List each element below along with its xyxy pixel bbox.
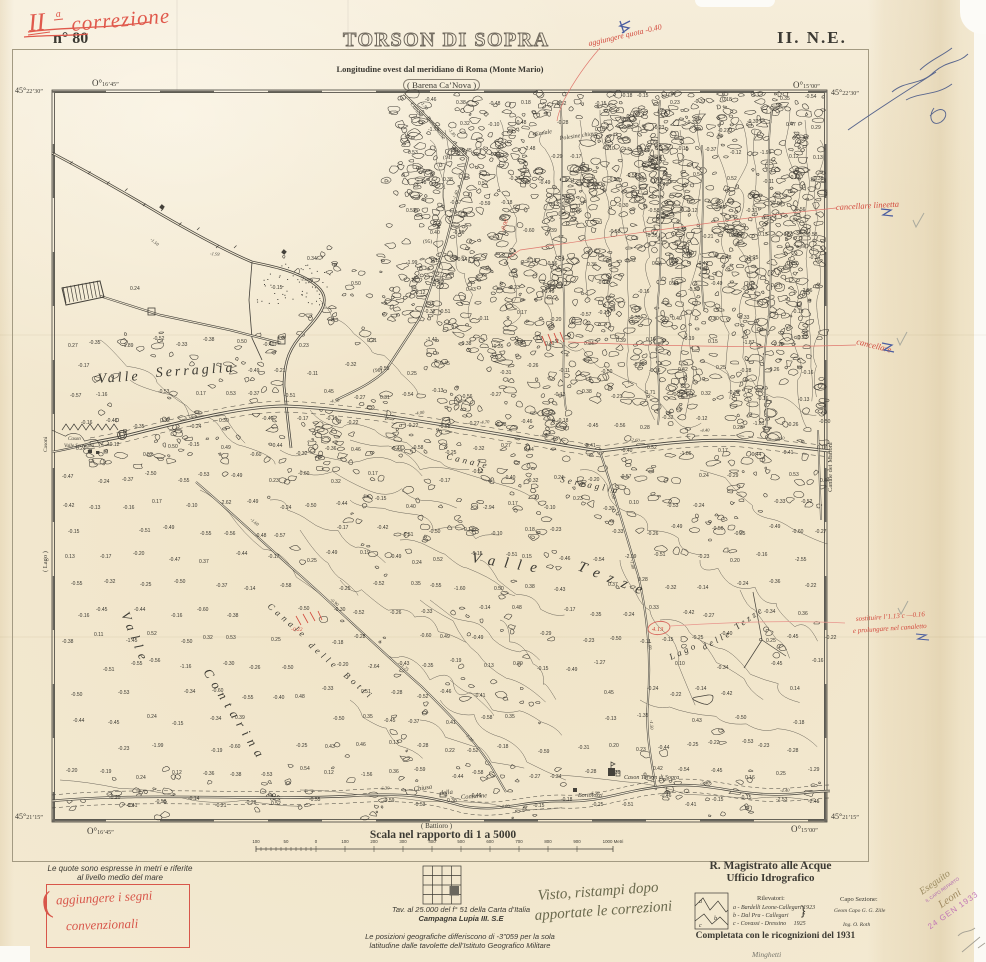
svg-text:( Lago ): ( Lago ) bbox=[42, 551, 49, 572]
svg-text:-0.26: -0.26 bbox=[453, 230, 465, 236]
svg-text:-0.50: -0.50 bbox=[819, 419, 831, 425]
svg-text:-0.42: -0.42 bbox=[721, 691, 733, 697]
svg-text:-0.37: -0.37 bbox=[122, 477, 134, 483]
svg-text:-0.35: -0.35 bbox=[590, 612, 602, 618]
svg-text:(94): (94) bbox=[443, 154, 452, 161]
svg-text:( Battioro ): ( Battioro ) bbox=[421, 822, 453, 830]
svg-text:-0.56: -0.56 bbox=[712, 526, 724, 532]
svg-text:-0.22: -0.22 bbox=[805, 583, 817, 589]
svg-text:-0.28: -0.28 bbox=[557, 120, 569, 126]
svg-text:-0.52: -0.52 bbox=[373, 581, 385, 587]
svg-text:-0.49: -0.49 bbox=[326, 550, 338, 556]
svg-text:-0.25: -0.25 bbox=[339, 586, 351, 592]
svg-text:0.40: 0.40 bbox=[406, 504, 416, 510]
svg-text:-0.28: -0.28 bbox=[585, 769, 597, 775]
svg-text:-0.44: -0.44 bbox=[134, 607, 146, 613]
svg-text:-0.50: -0.50 bbox=[601, 369, 613, 375]
svg-text:-0.29: -0.29 bbox=[551, 154, 563, 160]
svg-text:-0.34: -0.34 bbox=[809, 255, 821, 261]
svg-text:-0.18: -0.18 bbox=[501, 200, 513, 206]
svg-text:-0.55: -0.55 bbox=[71, 581, 83, 587]
svg-text:0.13: 0.13 bbox=[464, 527, 474, 533]
svg-text:Tezze: Tezze bbox=[732, 604, 766, 632]
svg-text:Chiusa: Chiusa bbox=[413, 783, 432, 792]
svg-text:0.18: 0.18 bbox=[525, 527, 535, 533]
svg-text:-0.44: -0.44 bbox=[73, 718, 85, 724]
svg-text:100: 100 bbox=[252, 839, 260, 844]
svg-text:-0.15: -0.15 bbox=[740, 795, 752, 801]
svg-text:-0.47: -0.47 bbox=[62, 474, 74, 480]
svg-text:-0.16: -0.16 bbox=[633, 362, 645, 368]
svg-text:-0.10: -0.10 bbox=[544, 505, 556, 511]
svg-text:-0.37: -0.37 bbox=[248, 391, 260, 397]
svg-text:0.11: 0.11 bbox=[545, 341, 555, 347]
svg-text:-0.54: -0.54 bbox=[805, 94, 817, 100]
svg-text:-0.26: -0.26 bbox=[390, 610, 402, 616]
svg-text:-0.57: -0.57 bbox=[70, 393, 82, 399]
svg-text:-0.14: -0.14 bbox=[695, 686, 707, 692]
svg-text:-1.60: -1.60 bbox=[249, 517, 260, 527]
svg-text:-0.56: -0.56 bbox=[461, 394, 473, 400]
svg-text:Valle Serraglia: Valle Serraglia bbox=[64, 444, 95, 449]
svg-text:-0.54: -0.54 bbox=[402, 392, 414, 398]
svg-text:-0.48: -0.48 bbox=[720, 255, 732, 261]
svg-text:-0.51: -0.51 bbox=[622, 802, 634, 808]
svg-text:-0.38: -0.38 bbox=[495, 422, 507, 428]
svg-text:-0.15: -0.15 bbox=[595, 101, 607, 107]
svg-text:-0.45: -0.45 bbox=[587, 423, 599, 429]
svg-text:-0.42: -0.42 bbox=[683, 610, 695, 616]
svg-text:-0.14: -0.14 bbox=[741, 286, 753, 292]
svg-text:0.21: 0.21 bbox=[367, 338, 377, 344]
svg-text:-0.50: -0.50 bbox=[429, 529, 441, 535]
svg-text:-0.16: -0.16 bbox=[649, 368, 661, 374]
svg-text:-0.38: -0.38 bbox=[203, 337, 215, 343]
svg-text:-0.26: -0.26 bbox=[647, 531, 659, 537]
svg-text:-0.50: -0.50 bbox=[735, 715, 747, 721]
svg-text:cancellare: cancellare bbox=[856, 336, 893, 354]
svg-text:e prolungare nel canaletto: e prolungare nel canaletto bbox=[853, 622, 928, 635]
svg-text:-0.20: -0.20 bbox=[672, 392, 684, 398]
svg-text:-0.42: -0.42 bbox=[377, 525, 389, 531]
svg-text:-3.40: -3.40 bbox=[700, 780, 711, 786]
svg-text:-0.18: -0.18 bbox=[332, 640, 344, 646]
svg-text:0.53: 0.53 bbox=[226, 635, 236, 641]
svg-text:-0.32: -0.32 bbox=[662, 415, 674, 421]
svg-text:-0.54: -0.54 bbox=[771, 201, 783, 207]
svg-text:-0.22: -0.22 bbox=[789, 175, 801, 181]
svg-text:-0.49: -0.49 bbox=[671, 524, 683, 530]
svg-text:0.29: 0.29 bbox=[811, 125, 821, 131]
svg-text:-1.99: -1.99 bbox=[152, 743, 164, 749]
svg-text:-1.27: -1.27 bbox=[594, 660, 606, 666]
svg-text:-0.19: -0.19 bbox=[683, 336, 695, 342]
svg-text:-0.14: -0.14 bbox=[244, 586, 256, 592]
svg-text:0.27: 0.27 bbox=[501, 443, 511, 449]
svg-text:-0.24: -0.24 bbox=[647, 686, 659, 692]
svg-text:-0.41: -0.41 bbox=[106, 418, 118, 424]
svg-text:-0.49: -0.49 bbox=[247, 499, 259, 505]
svg-text:-0.60: -0.60 bbox=[229, 744, 241, 750]
svg-text:O°16’45”: O°16’45” bbox=[92, 78, 119, 88]
svg-text:0.14: 0.14 bbox=[790, 686, 800, 692]
svg-text:-0.16: -0.16 bbox=[171, 613, 183, 619]
svg-text:0.22: 0.22 bbox=[445, 748, 455, 754]
svg-text:-0.53: -0.53 bbox=[414, 802, 426, 808]
svg-text:0.36: 0.36 bbox=[389, 769, 399, 775]
svg-text:-0.48: -0.48 bbox=[415, 180, 427, 186]
svg-text:-0.52: -0.52 bbox=[472, 469, 484, 475]
svg-text:Casoni: Casoni bbox=[43, 436, 49, 452]
svg-text:-0.16: -0.16 bbox=[638, 289, 650, 295]
svg-text:a: a bbox=[699, 899, 702, 905]
svg-text:0.43: 0.43 bbox=[692, 718, 702, 724]
svg-text:-0.22: -0.22 bbox=[347, 420, 359, 426]
svg-text:-0.32: -0.32 bbox=[424, 309, 436, 315]
svg-text:-0.25: -0.25 bbox=[140, 582, 152, 588]
svg-text:-0.38: -0.38 bbox=[62, 639, 74, 645]
svg-text:Cason: Cason bbox=[68, 437, 81, 442]
svg-text:-0.36: -0.36 bbox=[769, 579, 781, 585]
svg-text:-0.51: -0.51 bbox=[284, 393, 296, 399]
svg-text:-0.57: -0.57 bbox=[274, 533, 286, 539]
svg-text:-0.27: -0.27 bbox=[815, 529, 827, 535]
svg-text:-2.45: -2.45 bbox=[808, 799, 820, 805]
svg-text:0.36: 0.36 bbox=[798, 611, 808, 617]
svg-text:-0.48: -0.48 bbox=[255, 533, 267, 539]
svg-text:0.47: 0.47 bbox=[786, 122, 796, 128]
svg-text:Geom Capo G. G. Zille: Geom Capo G. G. Zille bbox=[834, 908, 886, 914]
svg-text:0.52: 0.52 bbox=[143, 452, 153, 458]
svg-text:-0.53: -0.53 bbox=[118, 690, 130, 696]
svg-text:-0.50: -0.50 bbox=[174, 579, 186, 585]
svg-text:-0.16: -0.16 bbox=[525, 258, 537, 264]
svg-text:-1.95: -1.95 bbox=[760, 150, 772, 156]
svg-text:0.39: 0.39 bbox=[616, 338, 626, 344]
svg-text:-0.35: -0.35 bbox=[646, 233, 658, 239]
svg-text:-1.60: -1.60 bbox=[647, 640, 653, 651]
svg-text:-0.27: -0.27 bbox=[468, 421, 480, 427]
svg-text:O°15’00”: O°15’00” bbox=[793, 80, 820, 90]
svg-text:-0.42: -0.42 bbox=[63, 503, 75, 509]
svg-text:0.24: 0.24 bbox=[130, 286, 140, 292]
svg-text:-0.46: -0.46 bbox=[391, 446, 403, 452]
svg-text:-0.14: -0.14 bbox=[456, 257, 468, 263]
svg-text:0.36: 0.36 bbox=[587, 262, 597, 268]
svg-text:-0.17: -0.17 bbox=[570, 154, 582, 160]
svg-text:-0.30: -0.30 bbox=[334, 607, 346, 613]
svg-text:-0.39: -0.39 bbox=[747, 119, 759, 125]
svg-text:-1.50: -1.50 bbox=[149, 237, 160, 247]
svg-text:0.31: 0.31 bbox=[565, 178, 575, 184]
svg-text:-0.41: -0.41 bbox=[126, 803, 138, 809]
svg-text:-0.53: -0.53 bbox=[261, 772, 273, 778]
svg-text:-0.53: -0.53 bbox=[158, 389, 170, 395]
svg-text:-0.15: -0.15 bbox=[172, 721, 184, 727]
svg-text:-0.20: -0.20 bbox=[66, 768, 78, 774]
svg-text:-0.19: -0.19 bbox=[326, 416, 338, 422]
svg-text:-0.40: -0.40 bbox=[504, 475, 516, 481]
svg-text:0.35: 0.35 bbox=[411, 581, 421, 587]
svg-text:a: a bbox=[55, 9, 61, 20]
svg-text:-0.44: -0.44 bbox=[750, 452, 762, 458]
svg-text:delle: delle bbox=[700, 628, 733, 652]
svg-text:-0.21: -0.21 bbox=[215, 803, 227, 809]
svg-text:0.50: 0.50 bbox=[351, 281, 361, 287]
svg-text:0.10: 0.10 bbox=[629, 500, 639, 506]
svg-text:-0.30: -0.30 bbox=[617, 203, 629, 209]
svg-text:0.52: 0.52 bbox=[727, 176, 737, 182]
svg-text:-0.24: -0.24 bbox=[190, 424, 202, 430]
svg-text:-0.49: -0.49 bbox=[566, 667, 578, 673]
svg-text:-0.34: -0.34 bbox=[509, 176, 521, 182]
svg-text:-0.50: -0.50 bbox=[298, 606, 310, 612]
svg-text:-0.33: -0.33 bbox=[612, 529, 624, 535]
svg-text:-0.58: -0.58 bbox=[412, 445, 424, 451]
svg-text:-0.49: -0.49 bbox=[711, 281, 723, 287]
svg-text:0.17: 0.17 bbox=[817, 445, 827, 451]
svg-text:-0.16: -0.16 bbox=[123, 505, 135, 511]
svg-text:0.20: 0.20 bbox=[730, 558, 740, 564]
svg-text:0.41: 0.41 bbox=[586, 443, 596, 449]
svg-text:0.29: 0.29 bbox=[787, 261, 797, 267]
svg-text:-0.51: -0.51 bbox=[654, 552, 666, 558]
svg-text:-0.55: -0.55 bbox=[626, 173, 638, 179]
svg-text:-0.46: -0.46 bbox=[440, 689, 452, 695]
svg-text:-0.28: -0.28 bbox=[354, 634, 366, 640]
svg-text:-0.48: -0.48 bbox=[515, 120, 527, 126]
svg-text:0.27: 0.27 bbox=[771, 283, 781, 289]
svg-text:-0.50: -0.50 bbox=[181, 639, 193, 645]
svg-text:0.18: 0.18 bbox=[521, 100, 531, 106]
svg-text:-0.56: -0.56 bbox=[224, 531, 236, 537]
svg-text:-0.28: -0.28 bbox=[740, 368, 752, 374]
svg-text:0.24: 0.24 bbox=[412, 560, 422, 566]
svg-text:-0.55: -0.55 bbox=[242, 695, 254, 701]
svg-text:0.17: 0.17 bbox=[368, 471, 378, 477]
svg-text:-0.53: -0.53 bbox=[198, 472, 210, 478]
svg-text:-0.24: -0.24 bbox=[98, 479, 110, 485]
svg-text:0.37: 0.37 bbox=[199, 559, 209, 565]
svg-text:-0.23: -0.23 bbox=[583, 638, 595, 644]
svg-text:-4.40: -4.40 bbox=[780, 788, 790, 793]
svg-text:-0.27: -0.27 bbox=[703, 613, 715, 619]
svg-text:-4.40: -4.40 bbox=[540, 432, 551, 438]
svg-text:0.52: 0.52 bbox=[147, 631, 157, 637]
svg-text:0.15: 0.15 bbox=[758, 232, 768, 238]
svg-text:-0.49: -0.49 bbox=[163, 525, 175, 531]
svg-text:0.52: 0.52 bbox=[647, 445, 657, 451]
svg-text:-0.38: -0.38 bbox=[227, 613, 239, 619]
svg-text:0.25: 0.25 bbox=[776, 771, 786, 777]
svg-text:-0.12: -0.12 bbox=[730, 150, 742, 156]
svg-text:-0.53: -0.53 bbox=[742, 739, 754, 745]
svg-text:-0.43: -0.43 bbox=[554, 587, 566, 593]
svg-text:-0.38: -0.38 bbox=[230, 772, 242, 778]
svg-text:-4.40: -4.40 bbox=[700, 427, 711, 433]
svg-text:-2.60: -2.60 bbox=[630, 437, 641, 443]
svg-text:-0.42: -0.42 bbox=[697, 261, 709, 267]
svg-text:0.29: 0.29 bbox=[513, 661, 523, 667]
svg-text:-1.86: -1.86 bbox=[680, 451, 692, 457]
svg-text:-0.10: -0.10 bbox=[186, 503, 198, 509]
svg-text:-0.25: -0.25 bbox=[296, 743, 308, 749]
svg-text:0.35: 0.35 bbox=[363, 714, 373, 720]
svg-text:0.53: 0.53 bbox=[789, 472, 799, 478]
svg-text:-0.33: -0.33 bbox=[728, 390, 740, 396]
svg-text:-0.23: -0.23 bbox=[550, 527, 562, 533]
svg-text:-0.37: -0.37 bbox=[408, 719, 420, 725]
svg-text:0.11: 0.11 bbox=[431, 258, 441, 264]
svg-text:-0.49: -0.49 bbox=[390, 554, 402, 560]
svg-text:0.23: 0.23 bbox=[299, 343, 309, 349]
svg-text:45°21’15”: 45°21’15” bbox=[15, 812, 43, 821]
svg-text:-0.44: -0.44 bbox=[236, 551, 248, 557]
svg-text:-0.19: -0.19 bbox=[100, 769, 112, 775]
svg-text:-0.45: -0.45 bbox=[771, 661, 783, 667]
svg-text:-1.87: -1.87 bbox=[743, 340, 755, 346]
svg-text:-0.59: -0.59 bbox=[479, 201, 491, 207]
svg-text:-0.37: -0.37 bbox=[216, 583, 228, 589]
svg-text:-0.15: -0.15 bbox=[637, 93, 649, 99]
svg-text:0.31: 0.31 bbox=[669, 281, 679, 287]
svg-text:-0.49: -0.49 bbox=[472, 635, 484, 641]
svg-text:600: 600 bbox=[486, 839, 494, 844]
svg-text:-1.50: -1.50 bbox=[649, 720, 654, 730]
svg-text:-4.50: -4.50 bbox=[775, 436, 785, 441]
svg-text:-2.96: -2.96 bbox=[801, 288, 813, 294]
svg-text:-4.00: -4.00 bbox=[414, 410, 425, 416]
svg-text:-0.34: -0.34 bbox=[210, 716, 222, 722]
svg-text:0.27: 0.27 bbox=[68, 343, 78, 349]
svg-text:-0.14: -0.14 bbox=[479, 605, 491, 611]
svg-text:-0.15: -0.15 bbox=[662, 637, 674, 643]
svg-text:b - Dal Pra - Callegari: b - Dal Pra - Callegari ” bbox=[733, 913, 806, 919]
svg-text:-0.26: -0.26 bbox=[527, 363, 539, 369]
svg-text:-0.16: -0.16 bbox=[78, 613, 90, 619]
svg-text:-0.12: -0.12 bbox=[686, 208, 698, 214]
svg-text:aggiungere quota -0.40: aggiungere quota -0.40 bbox=[587, 22, 662, 48]
svg-text:0.38: 0.38 bbox=[525, 584, 535, 590]
svg-text:a: a bbox=[399, 423, 402, 429]
svg-text:-0.46: -0.46 bbox=[559, 556, 571, 562]
svg-text:-2.64: -2.64 bbox=[368, 664, 380, 670]
svg-text:-0.32: -0.32 bbox=[796, 335, 808, 341]
svg-text:0.35: 0.35 bbox=[505, 714, 515, 720]
svg-text:-0.52: -0.52 bbox=[555, 101, 567, 107]
svg-text:(95): (95) bbox=[423, 238, 432, 245]
svg-text:-2.62: -2.62 bbox=[220, 500, 232, 506]
svg-text:-0.50: -0.50 bbox=[688, 287, 700, 293]
svg-text:-0.36: -0.36 bbox=[325, 446, 337, 452]
svg-text:-0.40: -0.40 bbox=[263, 342, 275, 348]
svg-text:-1.80: -1.80 bbox=[629, 559, 636, 570]
svg-text:-2.50: -2.50 bbox=[145, 471, 157, 477]
svg-text:-0.15: -0.15 bbox=[537, 666, 549, 672]
svg-text:-0.17: -0.17 bbox=[297, 416, 309, 422]
svg-text:0.15: 0.15 bbox=[708, 339, 718, 345]
svg-text:-0.18: -0.18 bbox=[793, 720, 805, 726]
svg-text:-0.28: -0.28 bbox=[787, 748, 799, 754]
svg-text:-0.18: -0.18 bbox=[621, 93, 633, 99]
svg-text:-0.11: -0.11 bbox=[559, 368, 570, 374]
svg-text:-0.44: -0.44 bbox=[658, 745, 670, 751]
svg-text:0.23: 0.23 bbox=[510, 285, 520, 291]
svg-text:-0.22: -0.22 bbox=[670, 692, 682, 698]
svg-text:-0.22: -0.22 bbox=[825, 635, 837, 641]
svg-text:-0.34: -0.34 bbox=[638, 148, 650, 154]
svg-text:-0.60: -0.60 bbox=[420, 633, 432, 639]
svg-text:-4.70: -4.70 bbox=[480, 419, 491, 425]
svg-text:-0.46: -0.46 bbox=[521, 419, 533, 425]
svg-text:-0.10: -0.10 bbox=[488, 122, 500, 128]
svg-text:-0.24: -0.24 bbox=[280, 505, 292, 511]
svg-text:0.50: 0.50 bbox=[237, 339, 247, 345]
svg-text:-1.35: -1.35 bbox=[637, 713, 649, 719]
svg-text:-0.32: -0.32 bbox=[345, 362, 357, 368]
svg-text:-0.53: -0.53 bbox=[782, 232, 794, 238]
svg-text:0.32: 0.32 bbox=[460, 121, 470, 127]
svg-text:0.35: 0.35 bbox=[780, 96, 790, 102]
svg-text:-0.11: -0.11 bbox=[763, 179, 774, 185]
svg-text:45°22’30”: 45°22’30” bbox=[831, 88, 859, 97]
svg-text:-0.60: -0.60 bbox=[298, 471, 310, 477]
svg-text:-0.47: -0.47 bbox=[169, 557, 181, 563]
svg-text:-0.52: -0.52 bbox=[801, 499, 813, 505]
svg-text:-0.32: -0.32 bbox=[473, 446, 485, 452]
svg-text:-0.55: -0.55 bbox=[430, 583, 442, 589]
svg-text:-0.13: -0.13 bbox=[554, 392, 566, 398]
svg-text:-0.28: -0.28 bbox=[245, 800, 257, 806]
svg-text:-0.17: -0.17 bbox=[78, 363, 90, 369]
svg-text:0.50: 0.50 bbox=[168, 444, 178, 450]
svg-text:0.14: 0.14 bbox=[646, 337, 656, 343]
svg-text:-0.34: -0.34 bbox=[550, 774, 562, 780]
svg-text:-0.58: -0.58 bbox=[280, 583, 292, 589]
svg-text:0.53: 0.53 bbox=[408, 150, 418, 156]
svg-text:1000 Metri: 1000 Metri bbox=[603, 839, 624, 844]
svg-text:0.35: 0.35 bbox=[572, 208, 582, 214]
svg-text:-1.56: -1.56 bbox=[361, 772, 373, 778]
svg-text:-0.58: -0.58 bbox=[609, 229, 621, 235]
svg-text:0.17: 0.17 bbox=[508, 501, 518, 507]
svg-text:-0.12: -0.12 bbox=[696, 416, 708, 422]
svg-text:0.31: 0.31 bbox=[380, 395, 390, 401]
svg-text:-0.44: -0.44 bbox=[336, 501, 348, 507]
svg-text:-0.23: -0.23 bbox=[514, 340, 526, 346]
svg-text:-1.16: -1.16 bbox=[180, 664, 192, 670]
svg-text:-0.29: -0.29 bbox=[727, 473, 739, 479]
svg-text:-0.33: -0.33 bbox=[176, 342, 188, 348]
svg-text:-1.71: -1.71 bbox=[644, 390, 656, 396]
svg-text:0.24: 0.24 bbox=[699, 473, 709, 479]
svg-text:-0.30: -0.30 bbox=[603, 506, 615, 512]
svg-text:-0.35: -0.35 bbox=[133, 424, 145, 430]
svg-text:-0.57: -0.57 bbox=[620, 474, 632, 480]
svg-text:-0.52: -0.52 bbox=[467, 748, 479, 754]
svg-text:-0.37: -0.37 bbox=[694, 99, 706, 105]
svg-text:-0.13: -0.13 bbox=[798, 397, 810, 403]
svg-text:0.38: 0.38 bbox=[582, 389, 592, 395]
svg-text:-0.32: -0.32 bbox=[527, 478, 539, 484]
svg-text:0.44: 0.44 bbox=[524, 447, 534, 453]
svg-text:O°15’00”: O°15’00” bbox=[791, 824, 818, 834]
svg-text:0.32: 0.32 bbox=[203, 635, 213, 641]
svg-text:0.49: 0.49 bbox=[440, 634, 450, 640]
svg-text:0.38: 0.38 bbox=[447, 798, 457, 804]
svg-text:-0.41: -0.41 bbox=[474, 693, 486, 699]
svg-text:-0.45: -0.45 bbox=[96, 607, 108, 613]
